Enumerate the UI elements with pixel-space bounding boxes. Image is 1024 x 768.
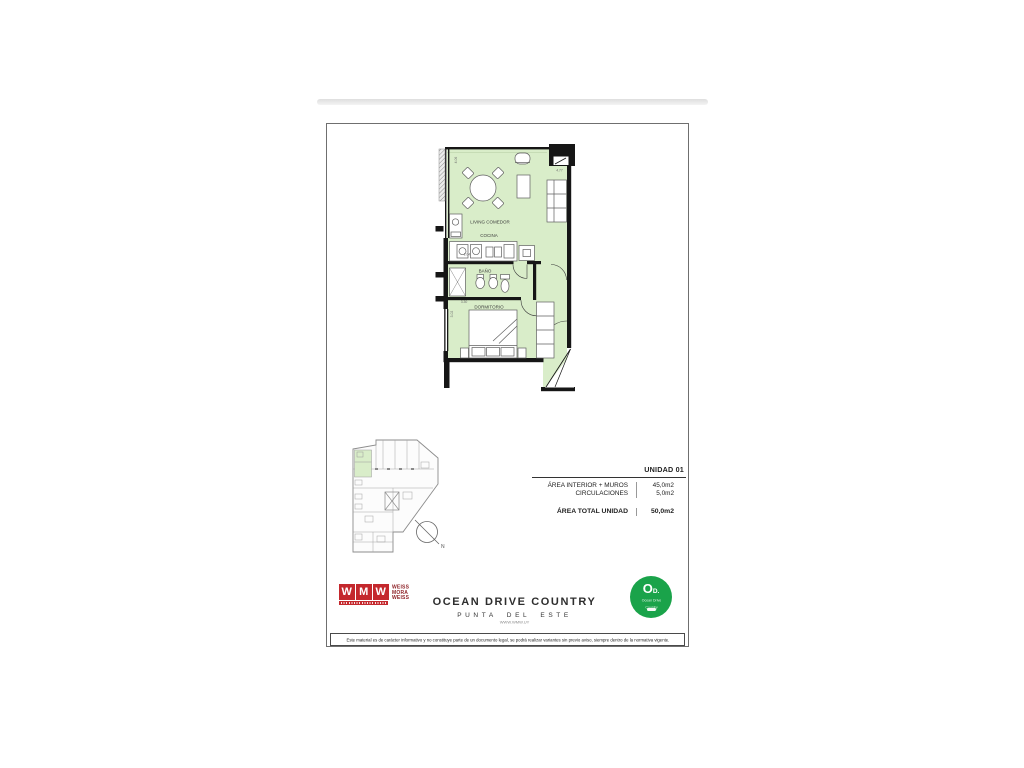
badge-text: Ocean Drive Country — [632, 599, 671, 607]
wardrobe — [537, 302, 555, 358]
site-plan: N — [341, 436, 456, 561]
dim-top-right: 4.77 — [556, 169, 563, 173]
row-label: ÁREA INTERIOR + MUROS — [532, 482, 636, 490]
top-divider-bar — [317, 99, 708, 105]
nightstand-left — [461, 348, 469, 358]
dim-bedroom: 3.02 — [450, 311, 454, 318]
row-value: 45,0m2 — [636, 482, 686, 490]
north-compass: N — [415, 520, 445, 550]
disclaimer-text: Este material es de carácter informativo… — [346, 637, 669, 642]
total-value: 50,0m2 — [636, 508, 686, 516]
total-label: ÁREA TOTAL UNIDAD — [532, 507, 636, 517]
table-row: CIRCULACIONES 5,0m2 — [532, 490, 686, 498]
toilet — [501, 275, 510, 293]
badge-monogram: OD. — [643, 583, 660, 598]
floor-plan: LIVING COMEDOR COCINA BAÑO DORMITORIO 4.… — [433, 144, 575, 394]
north-label: N — [441, 544, 445, 550]
project-website: WWW.WMW.UY — [341, 620, 688, 626]
total-row: ÁREA TOTAL UNIDAD 50,0m2 — [532, 507, 686, 517]
shower — [450, 268, 466, 296]
bed — [469, 310, 517, 358]
table-row: ÁREA INTERIOR + MUROS 45,0m2 — [532, 482, 686, 490]
duct-box — [519, 246, 535, 261]
project-location: PUNTA DEL ESTE — [341, 612, 688, 619]
row-label: CIRCULACIONES — [532, 490, 636, 498]
dim-bath: 3.30 — [461, 300, 468, 304]
living-label: LIVING COMEDOR — [470, 220, 510, 225]
highlighted-unit — [355, 450, 372, 477]
side-table — [517, 175, 530, 198]
ocean-drive-badge: OD. Ocean Drive Country — [630, 576, 672, 618]
armchair — [515, 153, 530, 164]
dim-kitchen: 2.04 — [464, 253, 471, 257]
bedroom-label: DORMITORIO — [474, 305, 504, 310]
dim-top-left: 4.06 — [454, 157, 458, 164]
kitchen-label: COCINA — [480, 233, 498, 238]
disclaimer-bar: Este material es de carácter informativo… — [330, 633, 685, 646]
bath-label: BAÑO — [479, 268, 492, 274]
plan-sheet: LIVING COMEDOR COCINA BAÑO DORMITORIO 4.… — [326, 123, 689, 647]
page: LIVING COMEDOR COCINA BAÑO DORMITORIO 4.… — [0, 0, 1024, 768]
row-value: 5,0m2 — [636, 490, 686, 498]
unit-info-table: UNIDAD 01 ÁREA INTERIOR + MUROS 45,0m2 C… — [532, 465, 686, 517]
unit-title: UNIDAD 01 — [532, 465, 686, 478]
nightstand-right — [518, 348, 526, 358]
sofa — [547, 180, 567, 222]
